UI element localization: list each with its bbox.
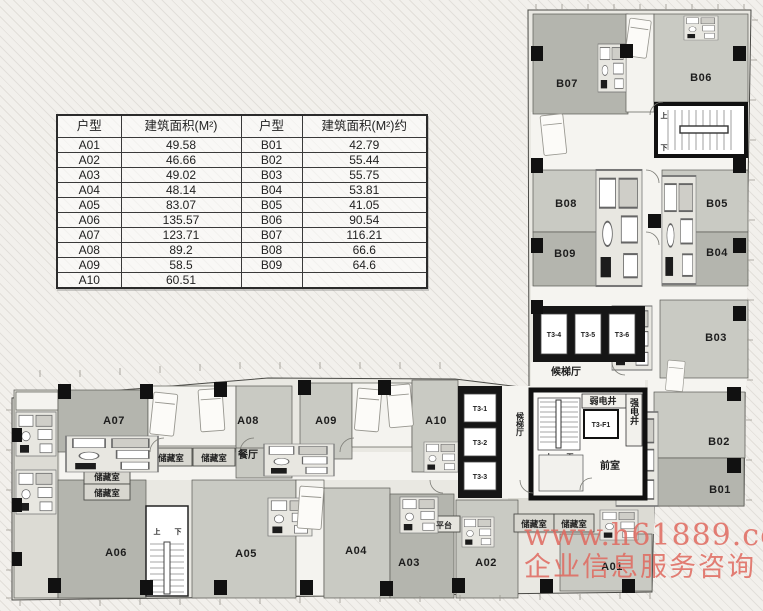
weak-electric-shaft-label: 弱电井 bbox=[589, 395, 616, 406]
unit-b06-label: B06 bbox=[690, 72, 712, 84]
service-core: 上 下 弱电井 T3-F1 强电井 前室 bbox=[531, 390, 645, 498]
elevator-t3-4-label: T3-4 bbox=[547, 332, 562, 339]
unit-b04-label: B04 bbox=[706, 247, 728, 259]
unit-b03-label: B03 bbox=[705, 332, 727, 344]
unit-a01-label: A01 bbox=[601, 561, 623, 573]
unit-b01-label: B01 bbox=[709, 484, 731, 496]
stair-up-label: 上 bbox=[154, 527, 161, 536]
storage-label: 储藏室 bbox=[93, 472, 120, 482]
elevator-lobby-label: 候梯厅 bbox=[551, 365, 581, 378]
unit-a06-label: A06 bbox=[105, 547, 127, 559]
unit-a08-label: A08 bbox=[237, 415, 259, 427]
dining-room-label: 餐厅 bbox=[237, 448, 258, 461]
elevator-bank-b: T3-4 T3-5 T3-6 bbox=[533, 306, 645, 362]
unit-a04-label: A04 bbox=[345, 545, 367, 557]
unit-b08-label: B08 bbox=[555, 198, 577, 210]
unit-b09-label: B09 bbox=[554, 248, 576, 260]
unit-a02-label: A02 bbox=[475, 557, 497, 569]
elevator-t3-3-label: T3-3 bbox=[473, 474, 488, 481]
elevator-bank-a: T3-1 T3-2 T3-3 bbox=[458, 386, 502, 498]
floorplan-page: 户型 建筑面积(M²) 户型 建筑面积(M²)约 A0149.58B0142.7… bbox=[0, 0, 763, 611]
unit-a10-label: A10 bbox=[425, 415, 447, 427]
unit-b05-label: B05 bbox=[706, 198, 728, 210]
storage-label: 储藏室 bbox=[93, 488, 120, 498]
unit-b07-label: B07 bbox=[556, 78, 578, 90]
floorplan-svg: 上 下 上 下 T3-4 T3-5 T3-6 T3-1 T3-2 bbox=[0, 0, 763, 611]
strong-electric-shaft-label: 强电井 bbox=[629, 398, 639, 426]
stairwell-upper-right: 上 下 bbox=[656, 104, 746, 156]
unit-a03-label: A03 bbox=[398, 557, 420, 569]
elevator-t3-1-label: T3-1 bbox=[473, 406, 488, 413]
elevator-t3-6-label: T3-6 bbox=[615, 332, 630, 339]
platform-label: 平台 bbox=[436, 520, 452, 530]
storage-label: 储藏室 bbox=[560, 519, 587, 529]
elevator-t3-2-label: T3-2 bbox=[473, 440, 488, 447]
storage-label: 储藏室 bbox=[200, 453, 227, 463]
unit-a09-label: A09 bbox=[315, 415, 337, 427]
elevator-t3-f1-label: T3-F1 bbox=[592, 422, 611, 429]
elevator-lobby-vertical-label: 候梯厅 bbox=[515, 411, 525, 437]
unit-a07-label: A07 bbox=[103, 415, 125, 427]
unit-a05-label: A05 bbox=[235, 548, 257, 560]
front-room-label: 前室 bbox=[600, 459, 620, 472]
stair-down-label: 下 bbox=[175, 528, 182, 536]
stair-up-label: 上 bbox=[661, 111, 668, 120]
storage-label: 储藏室 bbox=[157, 453, 184, 463]
unit-b02-label: B02 bbox=[708, 436, 730, 448]
elevator-t3-5-label: T3-5 bbox=[581, 332, 596, 339]
storage-label: 储藏室 bbox=[520, 519, 547, 529]
stair-down-label: 下 bbox=[661, 144, 668, 152]
